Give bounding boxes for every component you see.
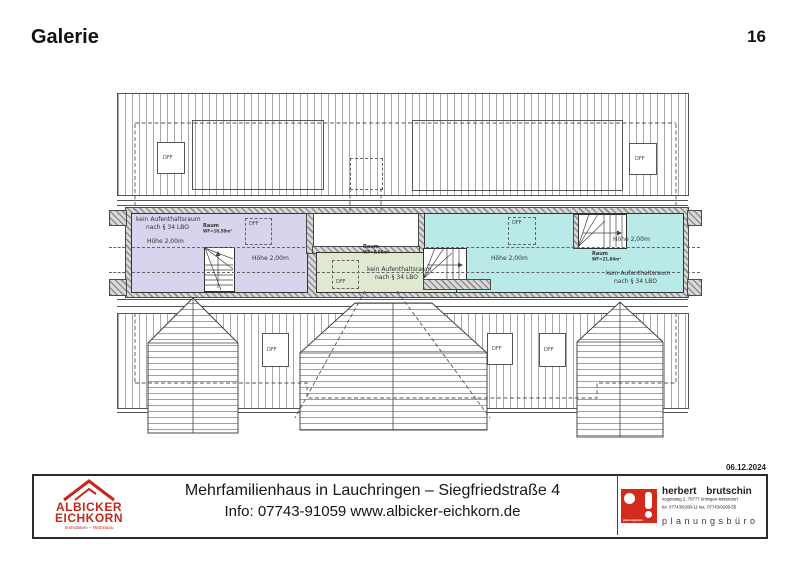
plan-vector-overlay xyxy=(117,93,689,439)
dormer-left xyxy=(148,298,238,433)
dormer-center xyxy=(300,303,487,430)
stair-arrows xyxy=(216,231,623,268)
logo-bar-icon xyxy=(645,492,652,509)
page: Galerie 16 DFF DFF xyxy=(0,0,800,567)
planner-phone: tel. 07743/9208-11 fax. 07743/9208-55 xyxy=(662,505,735,511)
project-title: Mehrfamilienhaus in Lauchringen – Siegfr… xyxy=(135,481,610,501)
agency-subtitle: Immobilien – Wohnbau xyxy=(53,526,125,531)
planner-logo: planungsbüro xyxy=(621,489,657,523)
project-info: Mehrfamilienhaus in Lauchringen – Siegfr… xyxy=(135,481,610,523)
agency-logo: ALBICKER EICHKORN Immobilien – Wohnbau xyxy=(44,478,134,532)
plan-date: 06.12.2024 xyxy=(726,463,766,472)
wall-return xyxy=(687,279,702,296)
title-block-divider xyxy=(617,474,618,535)
roof-logo-icon xyxy=(62,478,116,502)
planner-type: planungsbüro xyxy=(662,516,764,526)
stair-treads xyxy=(204,214,622,290)
logo-dot-icon xyxy=(645,511,652,518)
planner-name: herbert brutschin xyxy=(662,486,764,497)
wall-return xyxy=(687,210,702,226)
logo-circle-icon xyxy=(624,493,635,504)
page-number: 16 xyxy=(747,27,766,47)
project-contact: Info: 07743-91059 www.albicker-eichkorn.… xyxy=(135,501,610,523)
page-title: Galerie xyxy=(31,26,99,49)
planner-info: herbert brutschin vogelsang 2, 79777 ühl… xyxy=(662,486,764,526)
agency-name-2: EICHKORN xyxy=(44,513,134,524)
planner-logo-text: planungsbüro xyxy=(623,519,643,522)
dormer-right xyxy=(577,302,663,437)
planner-address: vogelsang 2, 79777 ühlingen-birkendorf xyxy=(662,497,735,503)
